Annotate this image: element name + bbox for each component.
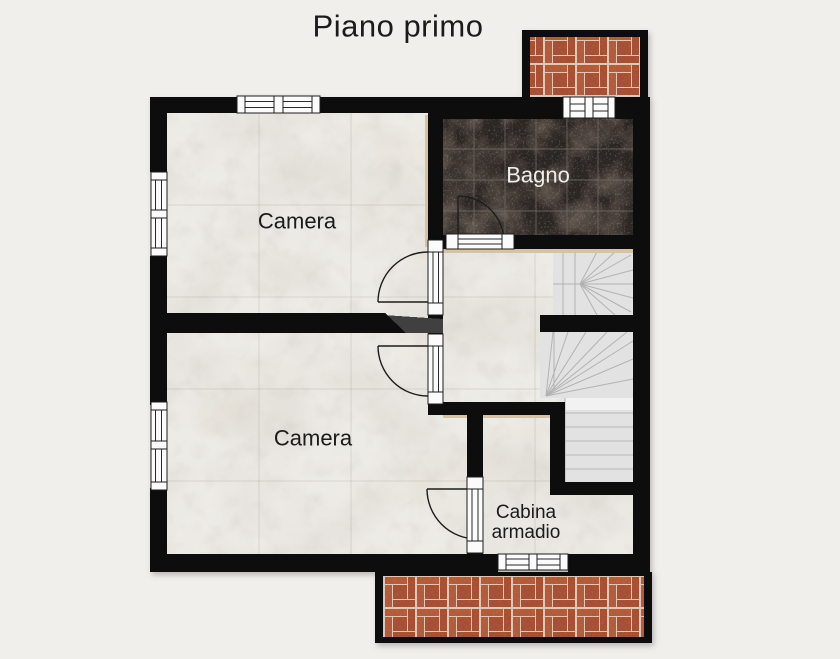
window-bagno: [563, 97, 615, 118]
terrace-bottom: [375, 572, 652, 643]
wall-segment: [150, 97, 167, 172]
wall-segment: [150, 256, 167, 405]
wall-segment: [550, 402, 565, 495]
wall-segment: [540, 315, 633, 332]
wall-segment: [428, 113, 443, 248]
wall-segment: [633, 97, 650, 572]
wall-segment: [550, 482, 633, 495]
window-top-camera: [237, 96, 320, 113]
stair-upper-winders: [553, 252, 633, 315]
wall-segment: [150, 554, 498, 572]
camera-divider-wall: [167, 313, 406, 333]
floor-plan-canvas: [0, 0, 840, 659]
window-cabina-bottom: [498, 554, 568, 570]
stair-lower-flight: [565, 398, 633, 483]
wall-segment: [428, 402, 565, 415]
plan-title: Piano primo: [313, 11, 484, 44]
stair-mid-winders: [540, 332, 633, 398]
room-label-cabina-armadio: Cabina armadio: [492, 503, 561, 543]
wall-segment: [443, 97, 563, 119]
room-label-cabina-line1: Cabina: [492, 503, 561, 523]
terrace-top: [522, 30, 648, 97]
window-left-camera-top: [151, 172, 167, 256]
floor-plan-page: Piano primo Camera Bagno Camera Cabina a…: [0, 0, 840, 659]
wall-segment: [467, 410, 483, 487]
window-left-camera-bottom: [151, 402, 167, 490]
wall-segment: [512, 235, 633, 249]
room-label-cabina-line2: armadio: [492, 523, 561, 543]
wall-segment: [320, 97, 443, 113]
room-label-bagno: Bagno: [506, 163, 570, 186]
room-label-camera-top: Camera: [258, 209, 336, 232]
room-label-camera-bottom: Camera: [274, 426, 352, 449]
building: [150, 30, 652, 643]
